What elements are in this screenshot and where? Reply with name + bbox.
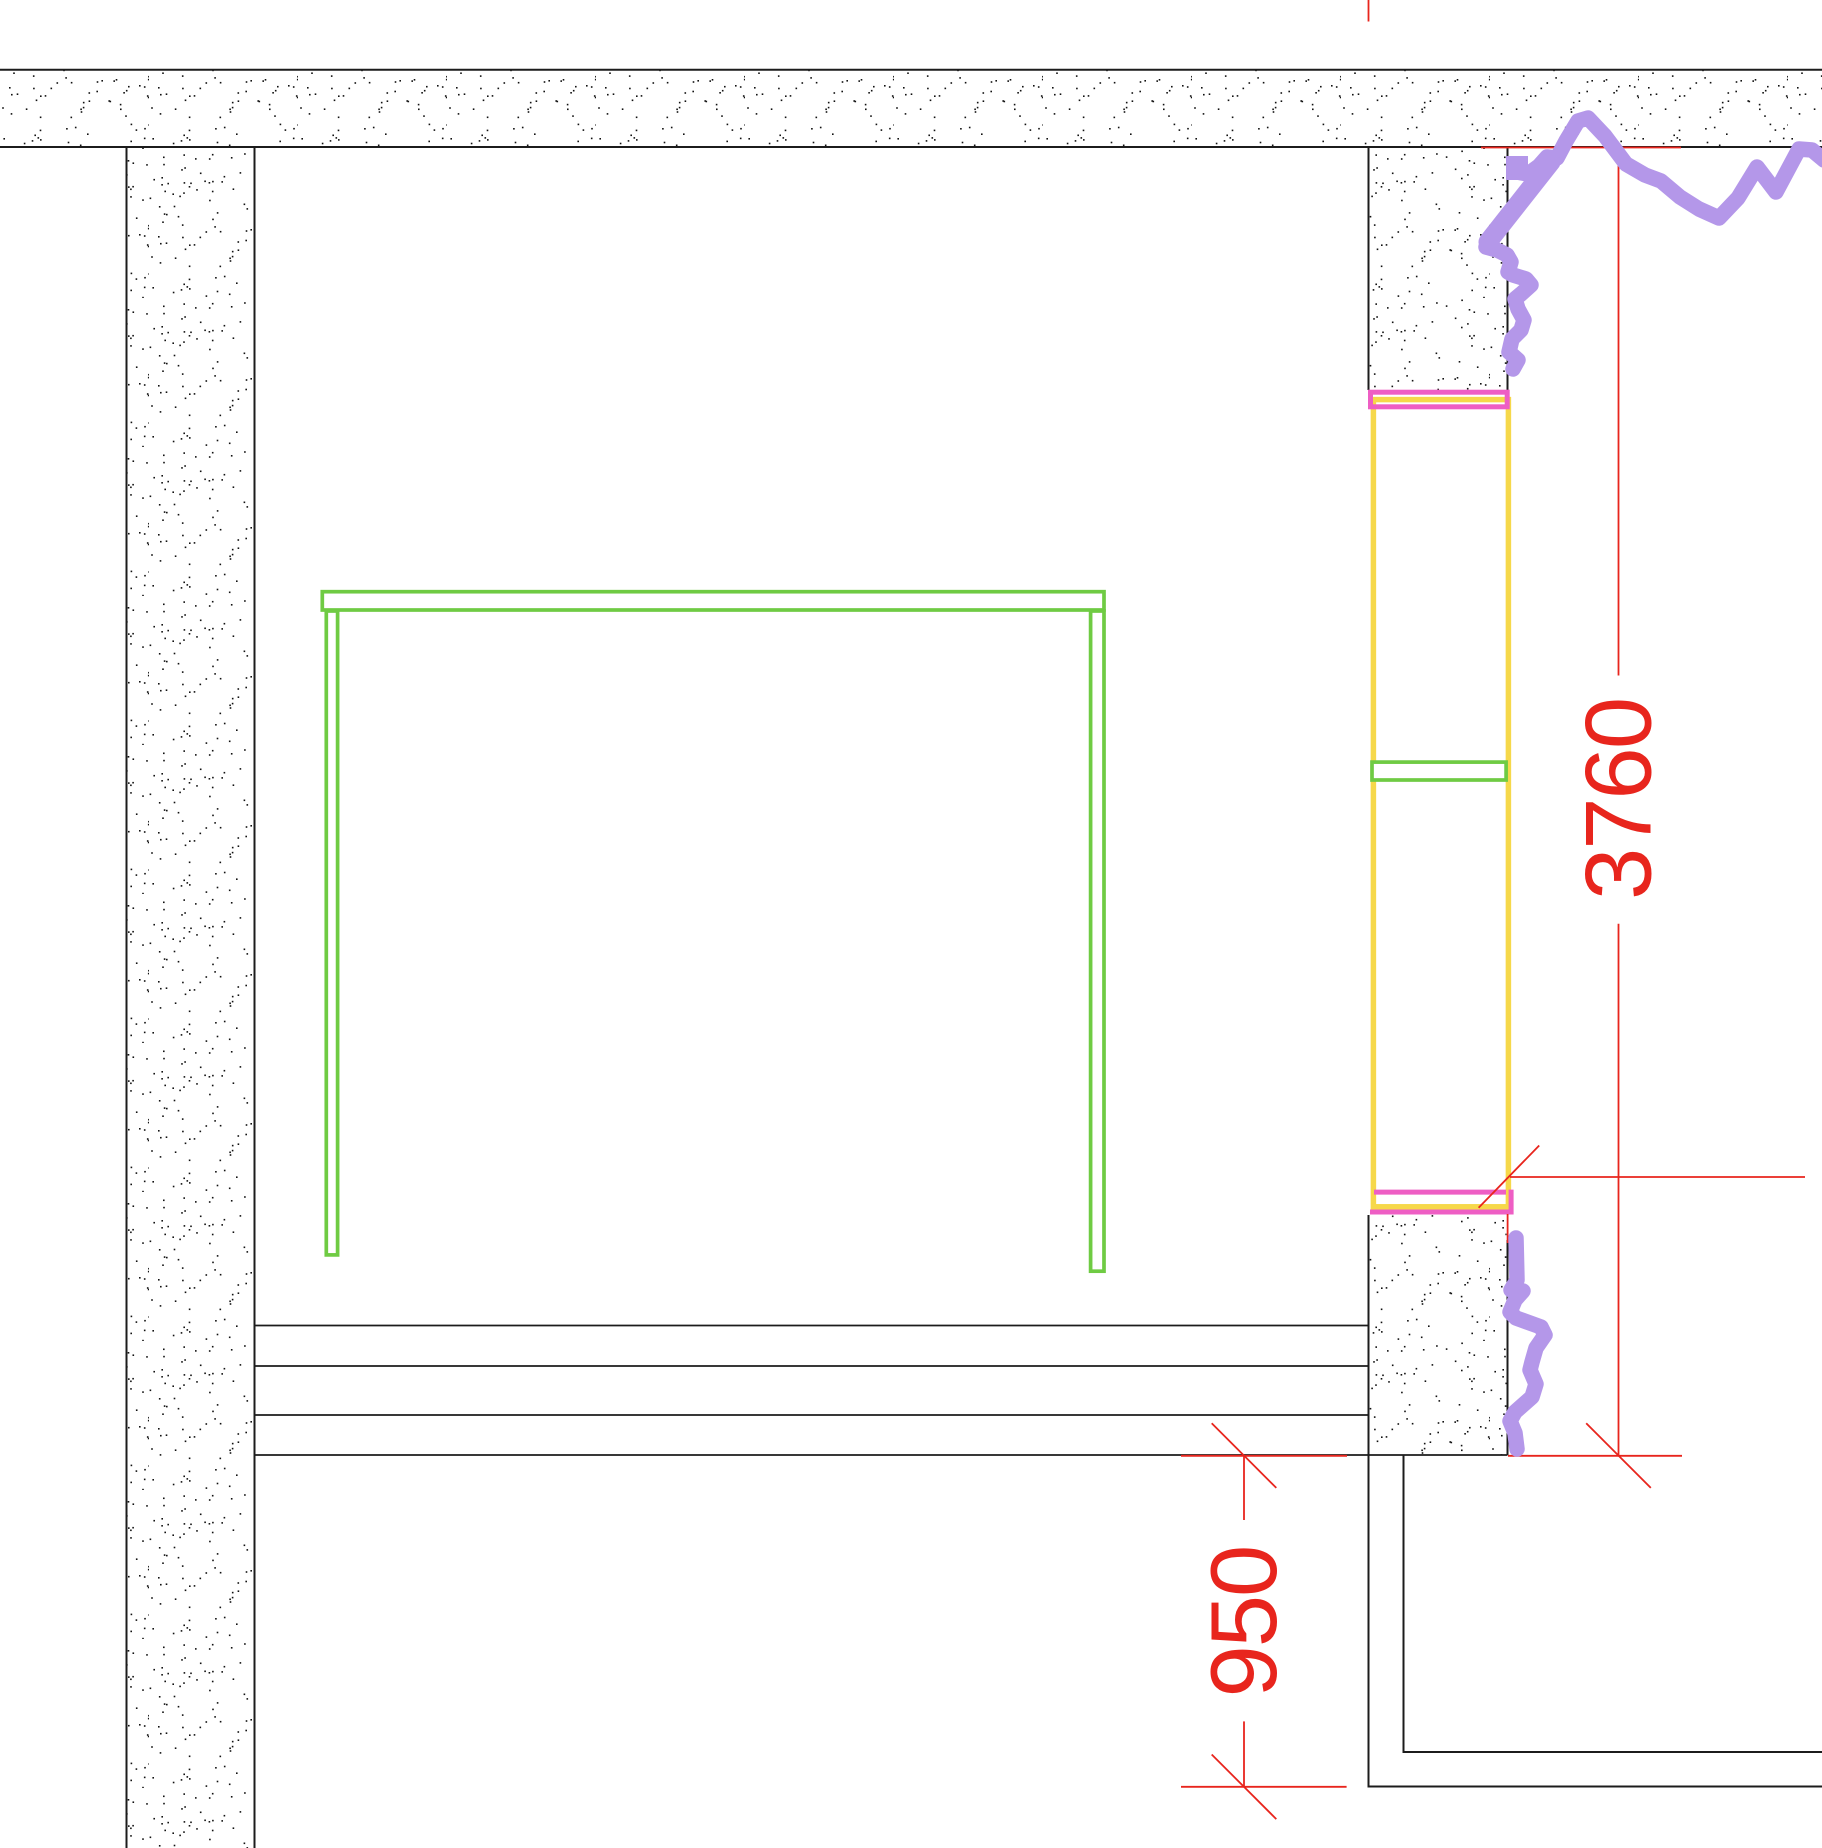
- svg-text:950: 950: [1191, 1547, 1296, 1698]
- svg-text:3760: 3760: [1566, 699, 1671, 900]
